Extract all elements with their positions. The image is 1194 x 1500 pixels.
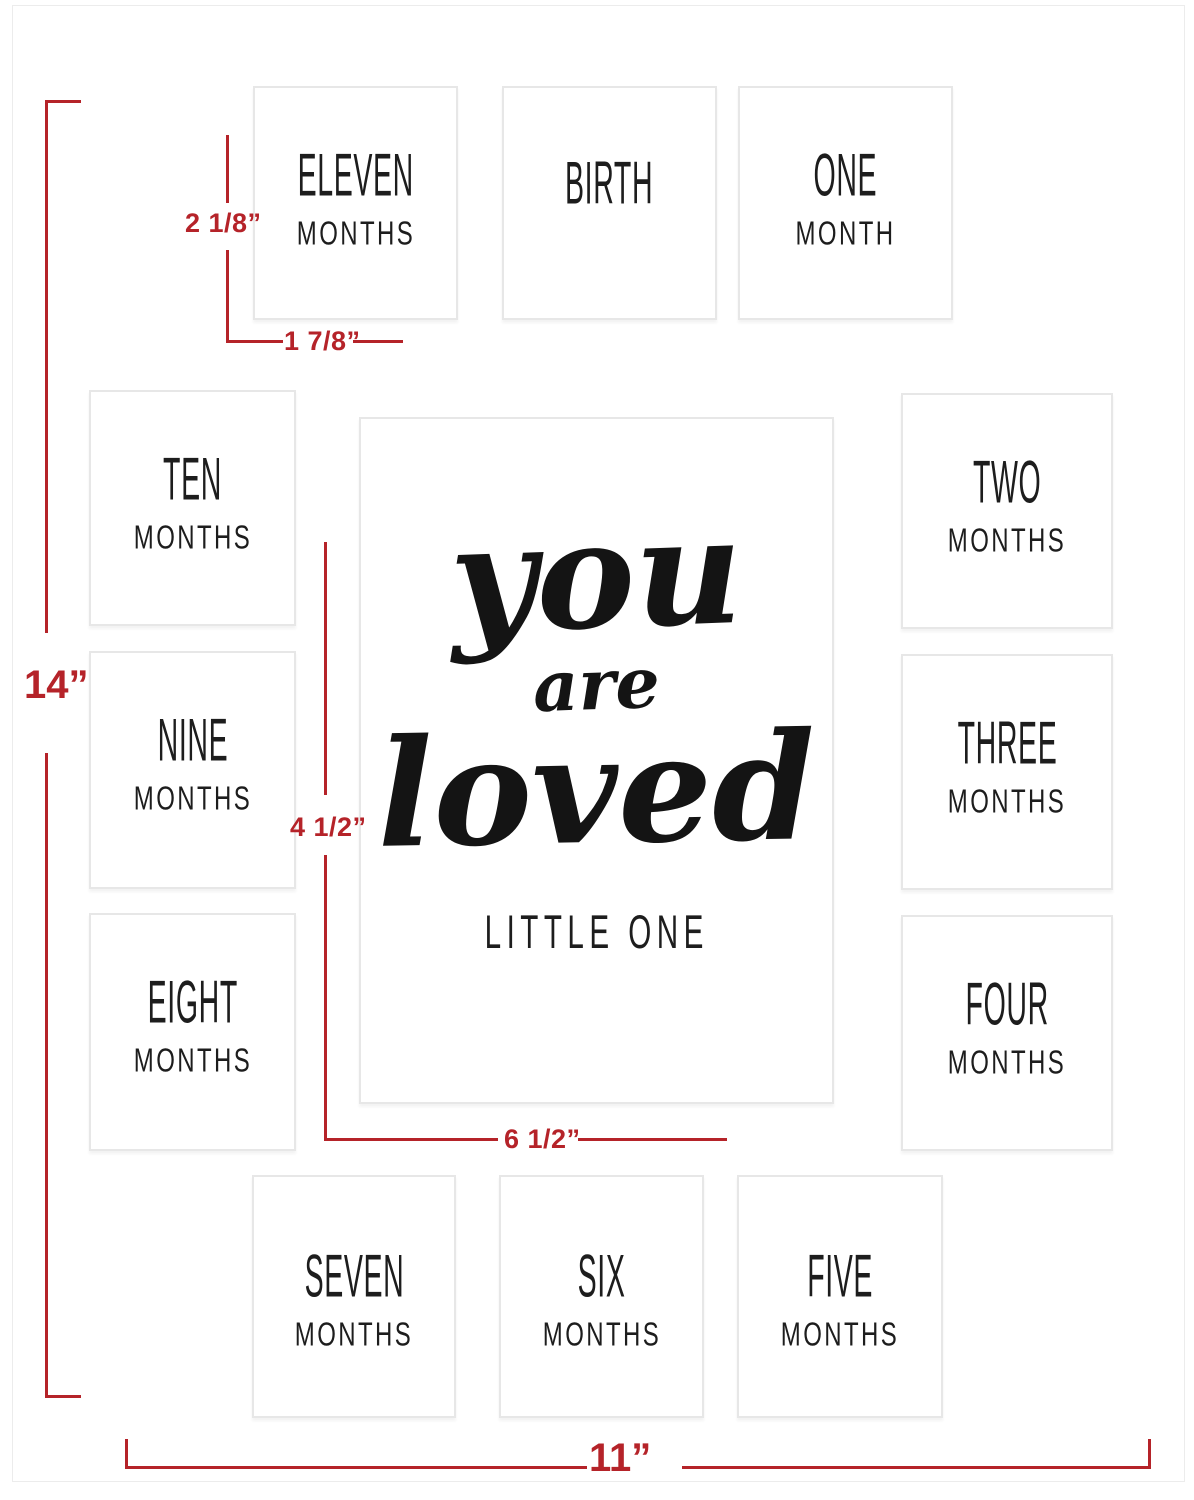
opening-sub: MONTHS — [948, 1047, 1066, 1080]
opening-word: FIVE — [807, 1245, 873, 1306]
milestone-mat-diagram: ELEVEN MONTHS BIRTH ONE MONTH TEN MONTHS… — [0, 0, 1194, 1500]
opening-label: SIX MONTHS — [501, 1177, 702, 1416]
opening-word: TEN — [163, 448, 222, 509]
dim-overall-height-tick-bottom — [45, 1395, 81, 1398]
opening-center: you are loved LITTLE ONE — [359, 417, 834, 1104]
dim-center-vertical-line-lower — [324, 855, 327, 1140]
opening-sub: MONTHS — [542, 1319, 660, 1352]
dim-small-height-label: 2 1/8” — [185, 208, 262, 238]
opening-sub: MONTHS — [296, 218, 414, 251]
dim-center-horizontal-label: 6 1/2” — [504, 1124, 581, 1154]
dim-center-horizontal-line-right — [578, 1138, 727, 1141]
opening-two-months: TWO MONTHS — [901, 393, 1113, 629]
opening-label: NINE MONTHS — [91, 653, 294, 887]
opening-label: TEN MONTHS — [91, 392, 294, 624]
dim-overall-width-tick-left — [125, 1439, 128, 1469]
dim-small-height-line-upper — [226, 135, 229, 203]
opening-sub: MONTHS — [133, 522, 251, 555]
opening-label: FIVE MONTHS — [739, 1177, 941, 1416]
dim-small-width-label: 1 7/8” — [284, 326, 361, 356]
opening-word: NINE — [157, 709, 228, 770]
opening-word: ONE — [814, 144, 878, 205]
center-subtitle: LITTLE ONE — [484, 909, 708, 957]
opening-sub: MONTHS — [133, 783, 251, 816]
script-line-loved: loved — [376, 719, 817, 861]
opening-sub: MONTHS — [295, 1319, 413, 1352]
opening-three-months: THREE MONTHS — [901, 654, 1113, 890]
dim-center-horizontal-line-left — [324, 1138, 498, 1141]
opening-word: FOUR — [965, 973, 1048, 1034]
opening-sub: MONTHS — [781, 1319, 899, 1352]
dim-center-vertical-line-upper — [324, 542, 327, 795]
dim-overall-height-line-lower — [45, 753, 48, 1398]
opening-seven-months: SEVEN MONTHS — [252, 1175, 456, 1418]
dim-overall-width-line-left — [125, 1466, 587, 1469]
opening-word: TWO — [973, 451, 1041, 512]
opening-sub: MONTHS — [948, 525, 1066, 558]
dim-overall-height-tick-top — [45, 100, 81, 103]
script-line-you: you — [448, 506, 745, 644]
opening-ten-months: TEN MONTHS — [89, 390, 296, 626]
opening-label: TWO MONTHS — [903, 395, 1111, 627]
opening-sub: MONTHS — [948, 786, 1066, 819]
opening-word: THREE — [957, 712, 1057, 773]
dim-small-width-line-right — [353, 340, 403, 343]
opening-label: ELEVEN MONTHS — [255, 88, 456, 318]
opening-word: ELEVEN — [297, 144, 413, 205]
opening-birth: BIRTH — [502, 86, 717, 320]
opening-sub: MONTHS — [133, 1045, 251, 1078]
opening-four-months: FOUR MONTHS — [901, 915, 1113, 1151]
center-artwork: you are loved LITTLE ONE — [361, 419, 832, 1102]
dim-small-height-line-lower — [226, 250, 229, 343]
dim-overall-width-tick-right — [1148, 1439, 1151, 1469]
opening-label: SEVEN MONTHS — [254, 1177, 454, 1416]
opening-label: THREE MONTHS — [903, 656, 1111, 888]
opening-label: FOUR MONTHS — [903, 917, 1111, 1149]
dim-center-vertical-label: 4 1/2” — [290, 812, 367, 842]
opening-label: BIRTH — [504, 88, 715, 318]
opening-six-months: SIX MONTHS — [499, 1175, 704, 1418]
opening-label: EIGHT MONTHS — [91, 915, 294, 1149]
opening-word: SEVEN — [304, 1245, 404, 1306]
opening-eleven-months: ELEVEN MONTHS — [253, 86, 458, 320]
opening-label: ONE MONTH — [740, 88, 951, 318]
dim-small-width-line-left — [226, 340, 283, 343]
opening-sub: MONTH — [795, 218, 895, 251]
opening-five-months: FIVE MONTHS — [737, 1175, 943, 1418]
opening-word: EIGHT — [147, 971, 237, 1032]
dim-overall-height-label: 14” — [24, 664, 89, 706]
opening-one-month: ONE MONTH — [738, 86, 953, 320]
opening-nine-months: NINE MONTHS — [89, 651, 296, 889]
dim-overall-width-label: 11” — [589, 1437, 651, 1479]
opening-eight-months: EIGHT MONTHS — [89, 913, 296, 1151]
dim-overall-height-line-upper — [45, 100, 48, 633]
opening-word: BIRTH — [565, 152, 653, 213]
dim-overall-width-line-right — [682, 1466, 1151, 1469]
opening-word: SIX — [578, 1245, 626, 1306]
